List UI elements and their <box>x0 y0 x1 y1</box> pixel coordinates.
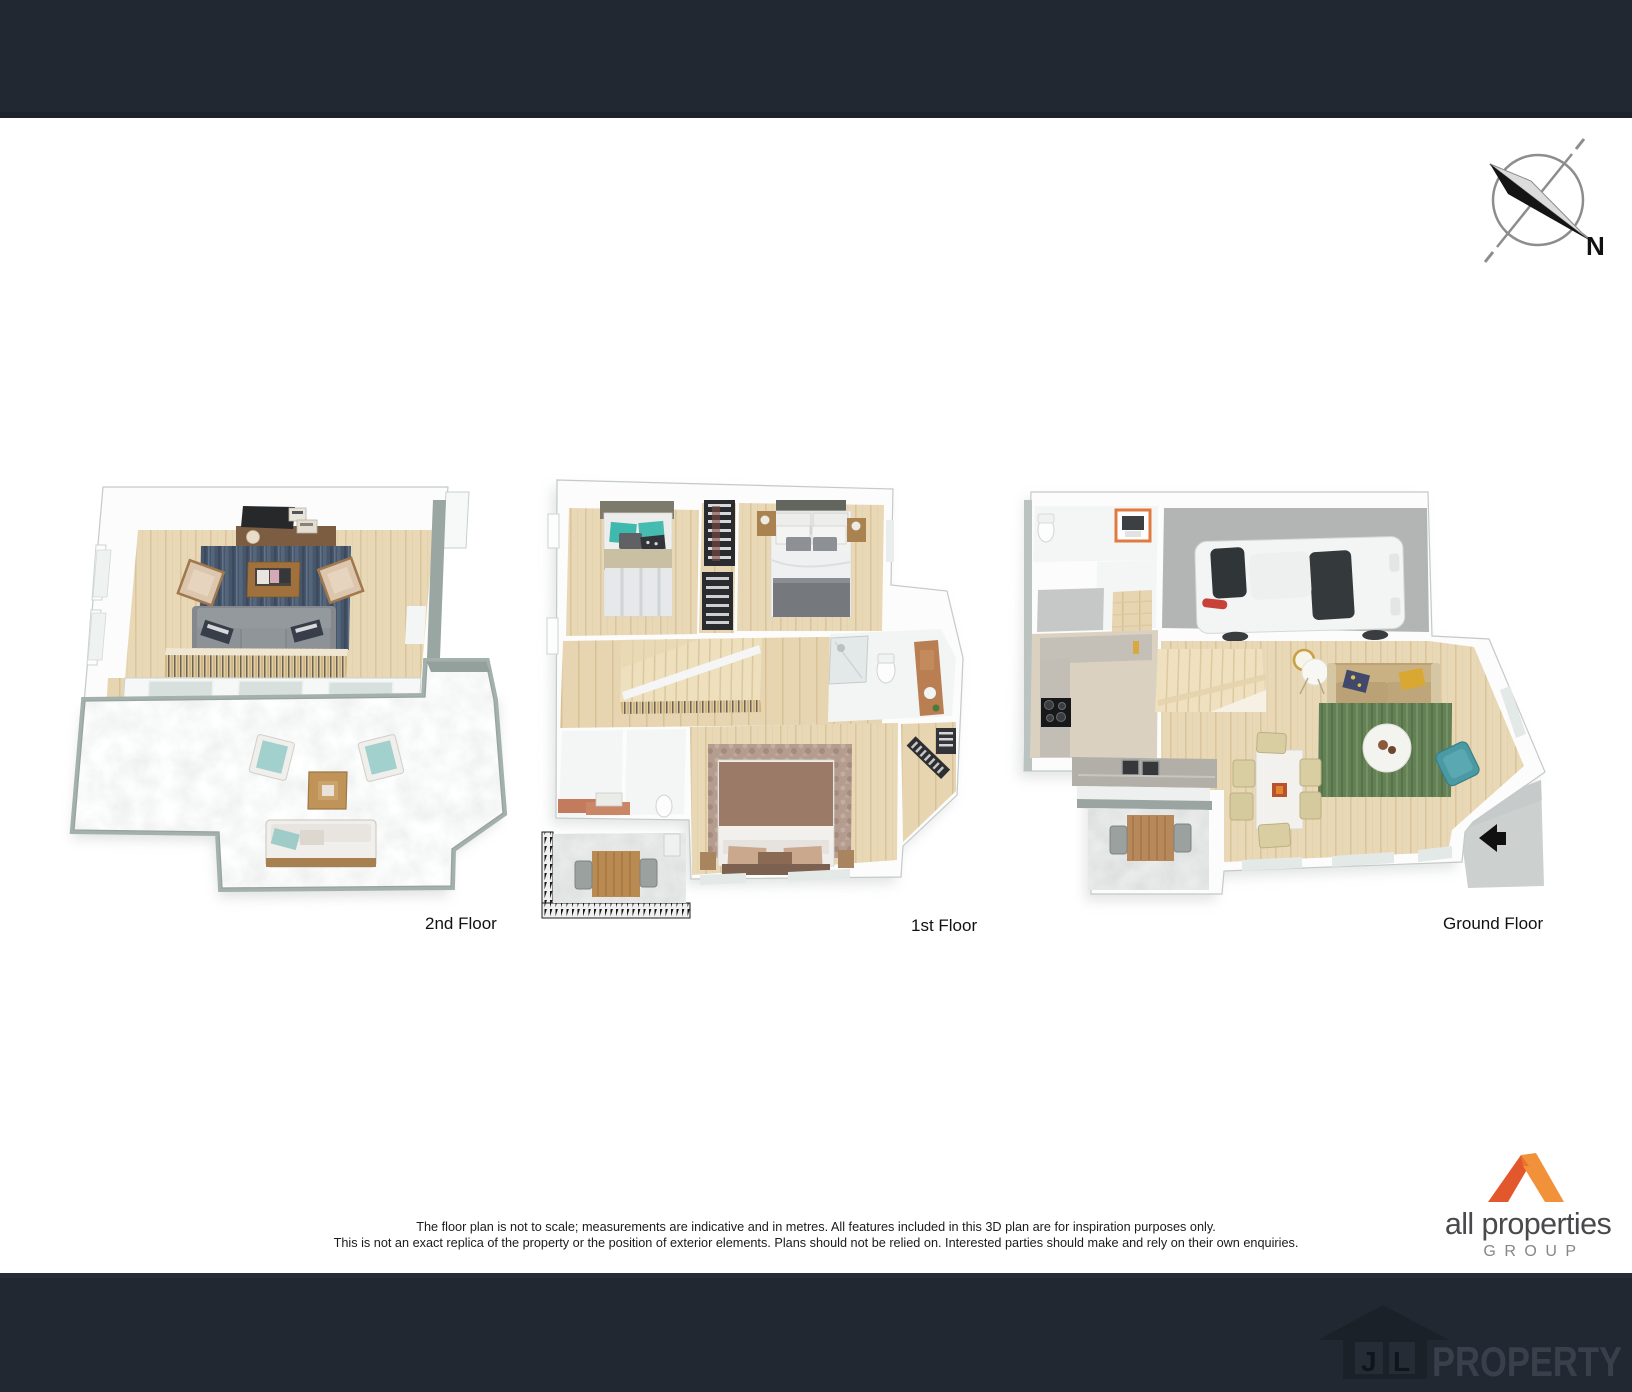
svg-text:all properties: all properties <box>1445 1207 1612 1241</box>
svg-text:L: L <box>1393 1346 1410 1377</box>
svg-text:1st Floor: 1st Floor <box>911 916 977 935</box>
svg-text:The floor plan is not to scale: The floor plan is not to scale; measurem… <box>416 1220 1216 1234</box>
svg-text:N: N <box>1586 231 1605 261</box>
svg-text:GROUP: GROUP <box>1483 1243 1584 1260</box>
svg-text:2nd Floor: 2nd Floor <box>425 914 497 933</box>
svg-text:PROPERTY: PROPERTY <box>1432 1338 1622 1385</box>
svg-text:This is not an exact replica o: This is not an exact replica of the prop… <box>334 1236 1299 1250</box>
svg-text:Ground Floor: Ground Floor <box>1443 914 1543 933</box>
svg-text:J: J <box>1361 1346 1377 1377</box>
